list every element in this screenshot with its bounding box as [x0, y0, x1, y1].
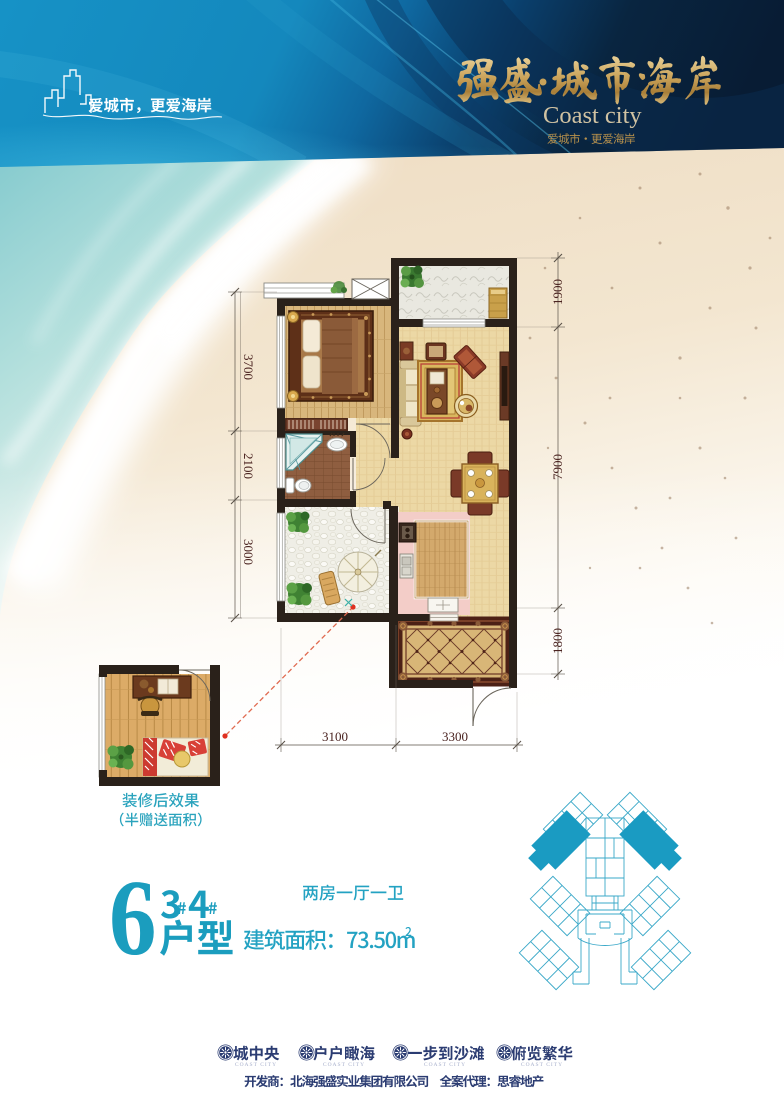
svg-text:3700: 3700: [241, 354, 256, 380]
svg-text:6: 6: [109, 858, 157, 978]
svg-text:COAST CITY: COAST CITY: [235, 1062, 277, 1068]
svg-text:2100: 2100: [241, 453, 256, 479]
svg-text:COAST CITY: COAST CITY: [323, 1062, 365, 1068]
svg-text:COAST CITY: COAST CITY: [521, 1062, 563, 1068]
svg-text:1900: 1900: [550, 279, 565, 305]
svg-text:1800: 1800: [550, 628, 565, 654]
svg-text:7900: 7900: [550, 454, 565, 480]
svg-text:3100: 3100: [322, 729, 348, 744]
svg-text:3000: 3000: [241, 539, 256, 565]
svg-text:3300: 3300: [442, 729, 468, 744]
svg-text:COAST CITY: COAST CITY: [424, 1062, 466, 1068]
